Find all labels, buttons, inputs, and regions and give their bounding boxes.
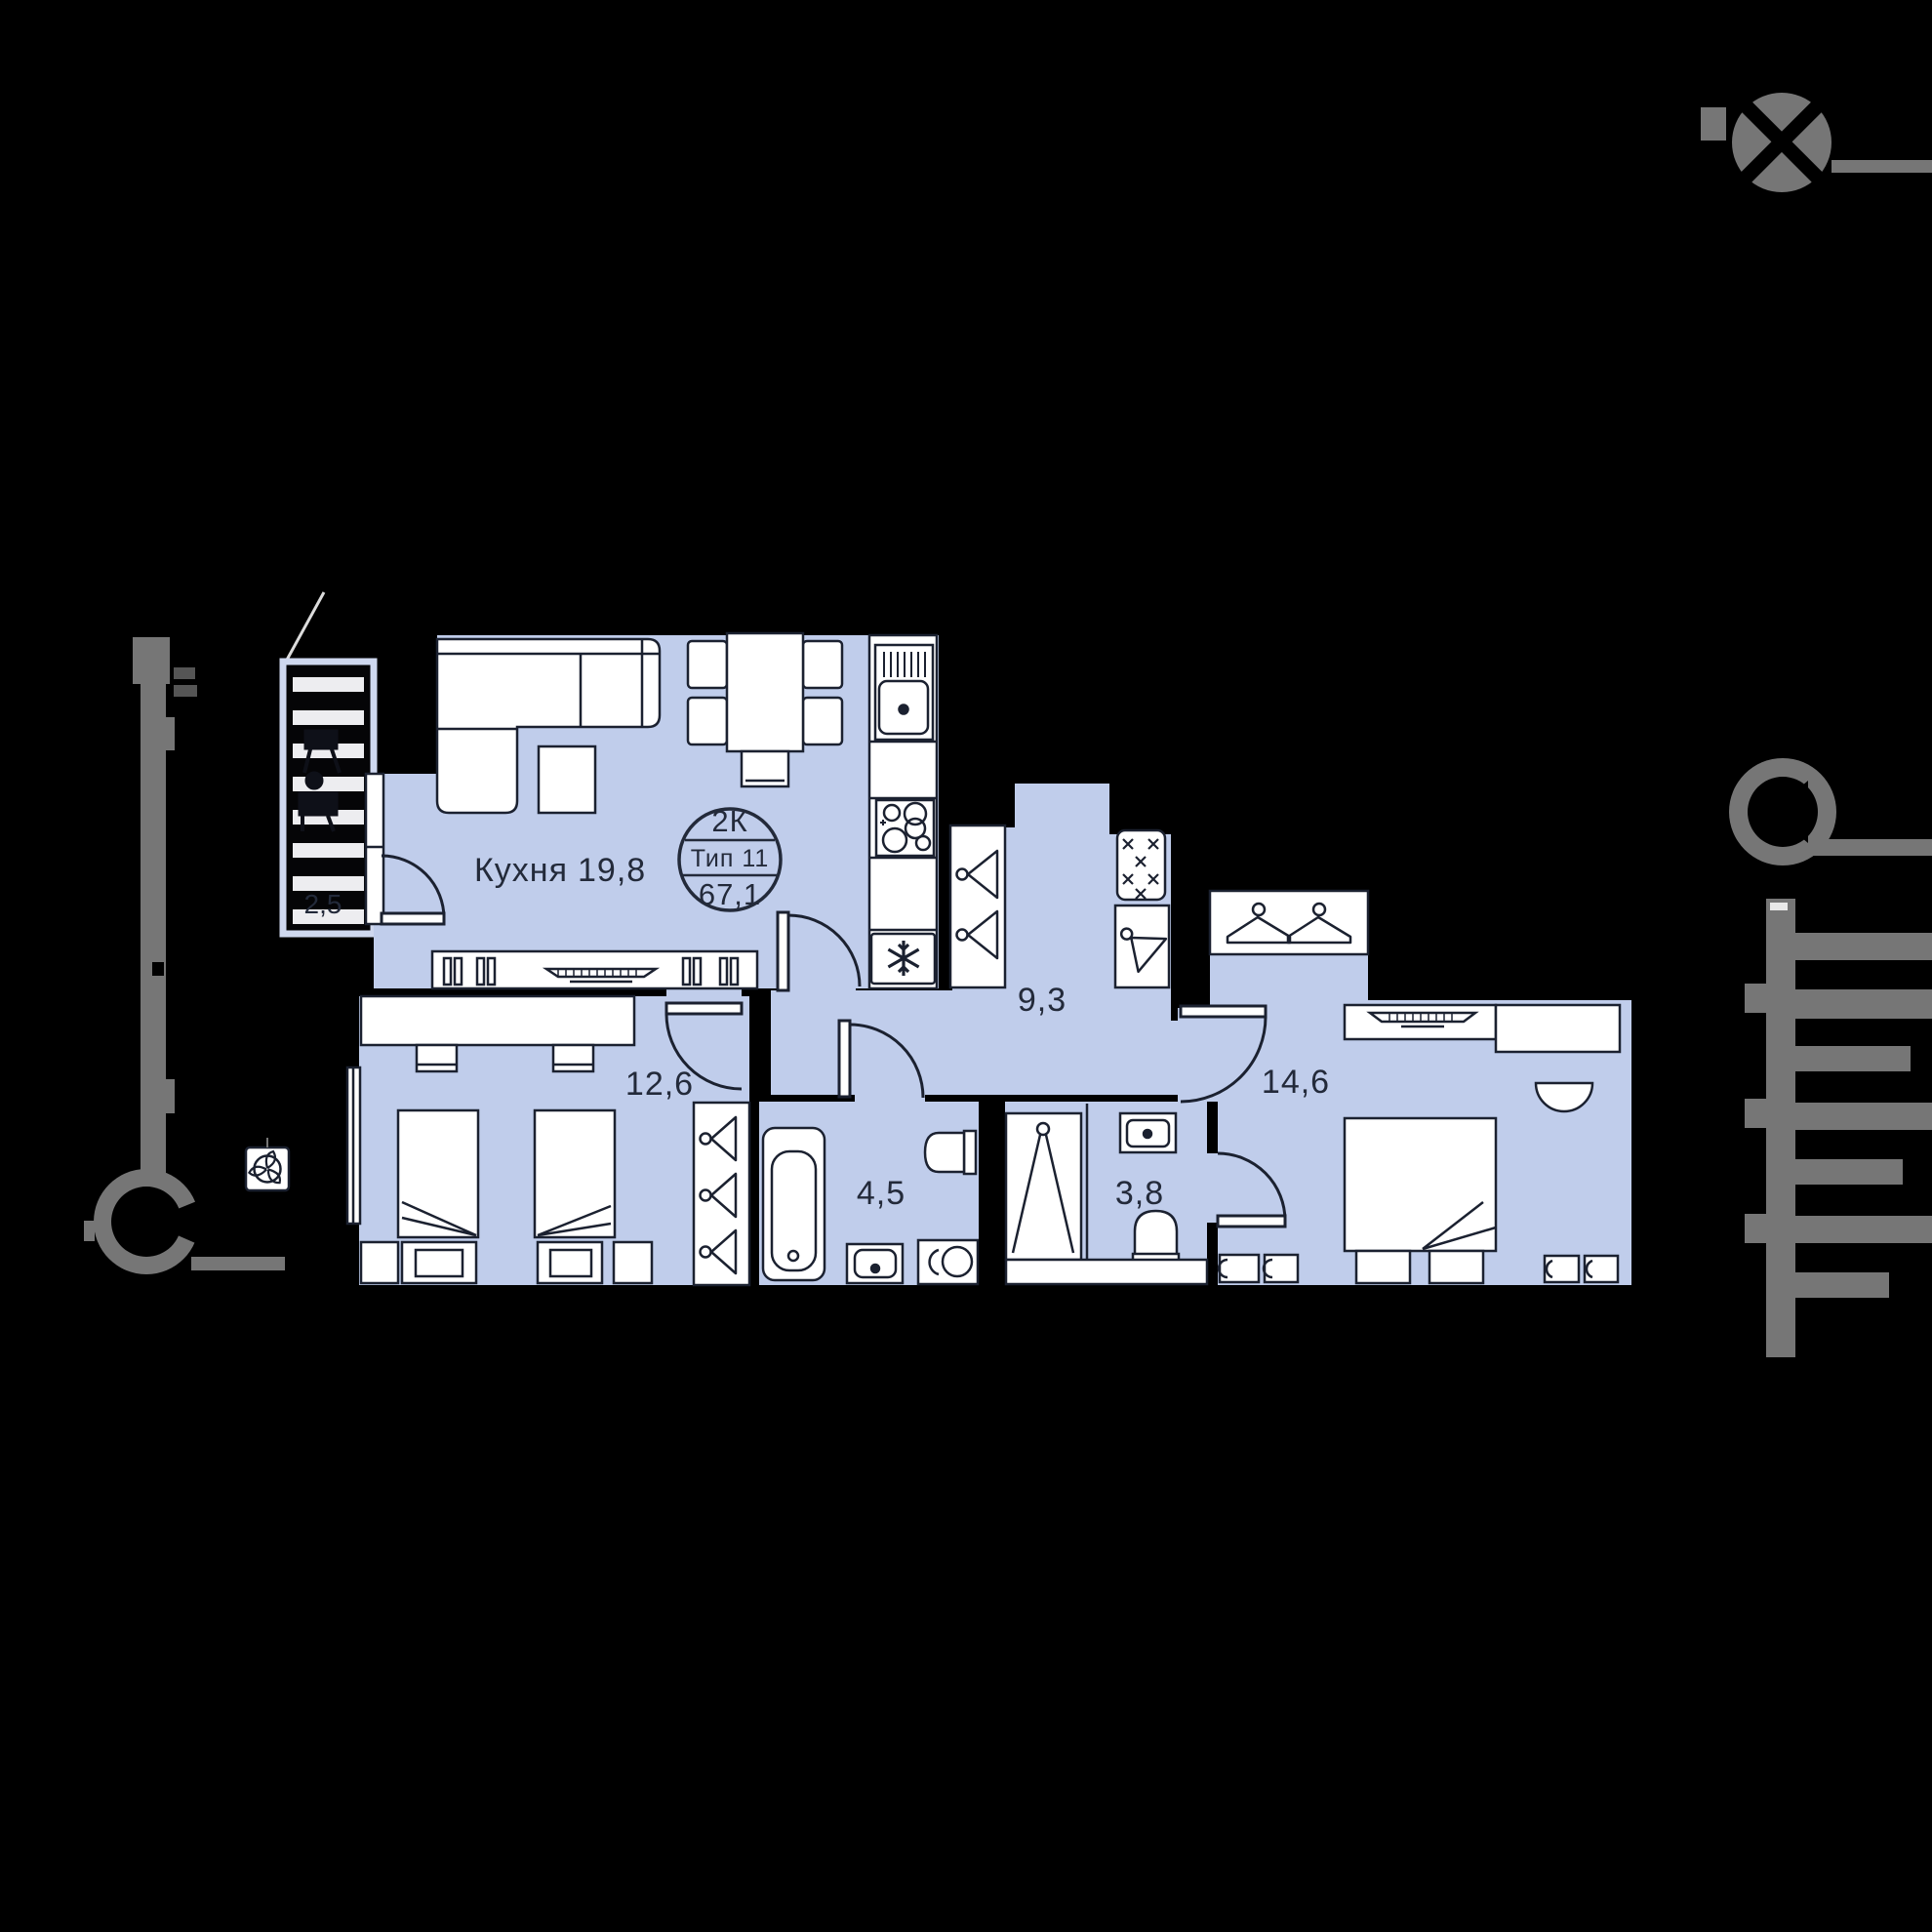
toilet-icon bbox=[1133, 1211, 1179, 1263]
single-bed bbox=[398, 1110, 478, 1283]
badge-area: 67,1 bbox=[699, 877, 761, 911]
balcony-area-label: 2,5 bbox=[304, 889, 342, 919]
single-bed bbox=[535, 1110, 615, 1283]
kitchen-name-label: Кухня bbox=[474, 852, 568, 889]
drying-unit bbox=[1006, 1113, 1081, 1260]
badge-type: Тип 11 bbox=[691, 845, 770, 872]
balcony: 2,5 bbox=[283, 662, 374, 934]
toilet-icon bbox=[925, 1131, 976, 1174]
chair bbox=[803, 641, 842, 688]
balcony-window bbox=[366, 774, 383, 924]
hall-closet bbox=[950, 825, 1005, 987]
stove-burners-icon bbox=[876, 800, 934, 856]
badge-rooms: 2К bbox=[711, 804, 747, 838]
chair bbox=[803, 698, 842, 745]
ottoman bbox=[539, 746, 595, 813]
opening-wc bbox=[1203, 1153, 1224, 1223]
hall-area-label: 9,3 bbox=[1018, 982, 1067, 1019]
desk bbox=[1496, 1005, 1620, 1052]
compass-decor-icon bbox=[1701, 93, 1932, 192]
balcony-leader-line bbox=[286, 592, 324, 662]
dining-table bbox=[727, 633, 803, 751]
washbasin-icon bbox=[847, 1244, 903, 1283]
opening-kitchen-hall bbox=[788, 984, 856, 999]
hall-wardrobe-small bbox=[1108, 906, 1169, 987]
snowflake-fridge-icon bbox=[871, 934, 935, 984]
bath-area-label: 4,5 bbox=[857, 1175, 906, 1212]
wardrobe-row bbox=[1210, 891, 1368, 954]
floorplan-canvas: 2,5 bbox=[0, 0, 1932, 1932]
desk bbox=[361, 996, 634, 1045]
tv-console bbox=[1345, 1005, 1496, 1039]
wardrobe bbox=[694, 1103, 749, 1285]
bedroom2-area-label: 14,6 bbox=[1262, 1064, 1330, 1101]
fan-vent-icon bbox=[246, 1138, 289, 1190]
kitchen-area-label: 19,8 bbox=[578, 852, 646, 889]
bathtub-icon bbox=[763, 1128, 825, 1280]
sink-icon bbox=[875, 645, 933, 740]
opening-bedroom2 bbox=[1163, 1021, 1183, 1095]
wc-counter bbox=[1006, 1260, 1207, 1284]
shoe-cabinet bbox=[1117, 830, 1165, 900]
tv-sideboard bbox=[432, 951, 757, 988]
washing-machine-icon bbox=[918, 1240, 978, 1284]
nightstand bbox=[614, 1242, 652, 1283]
washbasin-icon bbox=[1120, 1113, 1176, 1152]
chair bbox=[688, 698, 727, 745]
kitchen-counter bbox=[869, 635, 937, 988]
opening-bathroom bbox=[855, 1091, 925, 1107]
wc-area-label: 3,8 bbox=[1115, 1175, 1164, 1212]
nightstand bbox=[361, 1242, 398, 1283]
chair bbox=[688, 641, 727, 688]
site-plan-fragment-right bbox=[1729, 758, 1932, 1357]
bedroom1-area-label: 12,6 bbox=[625, 1066, 694, 1103]
